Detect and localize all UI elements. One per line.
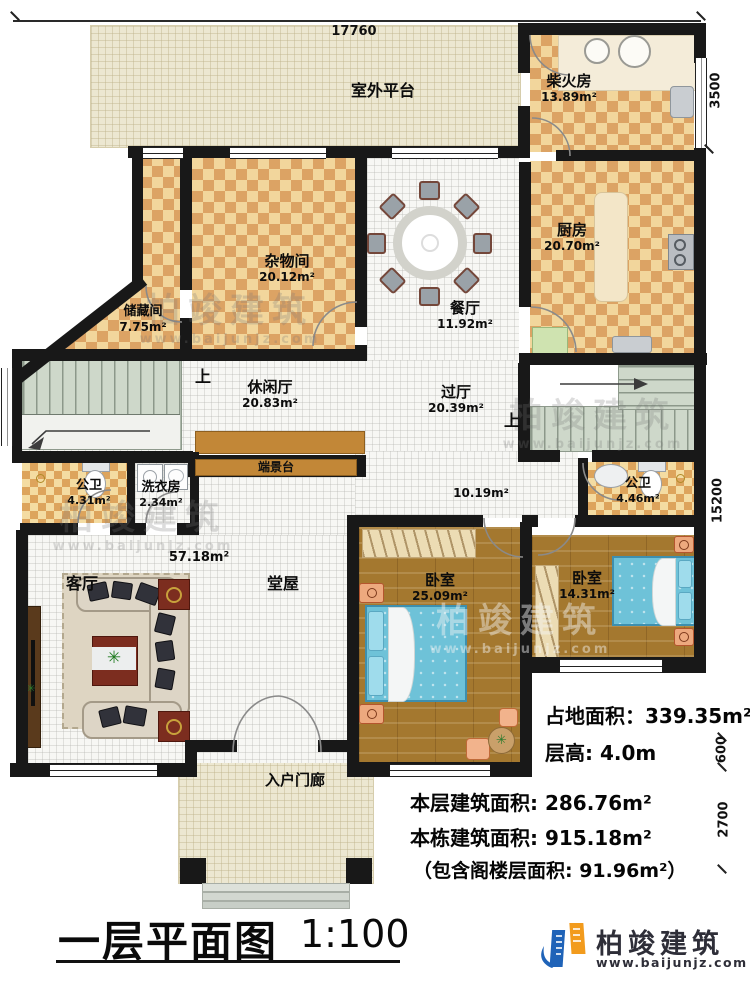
info-floor-height: 层高: 4.0m	[545, 737, 656, 766]
wall	[180, 318, 192, 352]
room-label-dining: 餐厅	[450, 300, 480, 317]
room-area-leisure: 20.83m²	[242, 397, 298, 410]
room-area-main-hall: 57.18m²	[169, 551, 229, 565]
nightstand	[359, 583, 384, 603]
wall	[355, 345, 367, 361]
room-label-living: 客厅	[66, 575, 98, 593]
room-area-bedroom-left: 25.09m²	[412, 590, 468, 603]
sofa-cushion	[111, 581, 133, 601]
bath-right-sink	[594, 464, 628, 488]
wall	[12, 349, 360, 361]
stairs-up-label-right: 上	[504, 412, 520, 430]
porch-pillar	[180, 858, 206, 884]
page-title-scale: 1:100	[300, 912, 410, 956]
wall	[578, 458, 588, 518]
wall	[355, 155, 367, 327]
window	[1, 368, 13, 446]
wall	[520, 522, 532, 777]
porch-step	[202, 892, 350, 901]
floor-plan-canvas: ✳ ✳ ✳	[0, 0, 750, 987]
side-table	[158, 711, 190, 742]
room-area-dining: 11.92m²	[437, 318, 493, 331]
wardrobe	[362, 529, 476, 558]
dim-tick	[717, 864, 727, 874]
room-label-sundry: 杂物间	[264, 253, 309, 270]
wall	[518, 363, 530, 452]
room-label-bath-left: 公卫	[76, 479, 102, 493]
pillow	[368, 611, 384, 651]
wall	[20, 451, 193, 463]
brand-url: www.baijunjz.com	[596, 955, 748, 970]
stairs-right	[530, 406, 696, 452]
kitchen-cabinet	[532, 327, 568, 355]
window	[230, 147, 326, 159]
wall	[519, 353, 707, 365]
stairs-up-label-left: 上	[195, 368, 211, 386]
dim-line-top	[13, 20, 701, 22]
wall	[193, 740, 237, 752]
pillow	[678, 592, 692, 620]
firewood-sink	[670, 86, 694, 118]
stairs-right-upper	[618, 365, 696, 410]
sofa-cushion	[123, 705, 148, 727]
pillow	[368, 656, 384, 696]
title-underline	[56, 960, 400, 963]
bath-light	[36, 474, 45, 483]
stool	[499, 708, 518, 727]
wall	[694, 148, 706, 673]
room-area-storage: 7.75m²	[119, 321, 166, 334]
room-area-kitchen: 20.70m²	[544, 240, 600, 253]
room-area-bath-left: 4.31m²	[67, 495, 110, 507]
room-label-storage: 储藏间	[123, 305, 162, 319]
pillow	[678, 560, 692, 588]
wall	[556, 150, 706, 161]
nightstand	[359, 704, 384, 724]
kitchen-sink	[612, 336, 652, 353]
room-area-sundry: 20.12m²	[259, 271, 315, 284]
wood-stove-burner	[584, 38, 610, 64]
room-area-bedroom-right: 14.31m²	[559, 588, 615, 601]
wall	[180, 155, 192, 290]
plant-table: ✳	[488, 727, 515, 754]
room-label-bath-right: 公卫	[625, 477, 651, 491]
dining-chair	[473, 233, 492, 254]
room-label-bedroom-left: 卧室	[425, 572, 455, 589]
sofa-cushion	[155, 640, 176, 662]
window	[560, 659, 662, 673]
room-area-firewood: 13.89m²	[541, 91, 597, 104]
window	[695, 58, 707, 148]
dim-right-2700: 2700	[717, 798, 732, 842]
logo-building-orange	[569, 923, 585, 954]
window	[390, 764, 490, 777]
window	[392, 147, 498, 159]
wall	[347, 515, 359, 777]
dim-right-mid: 15200	[711, 473, 726, 529]
room-label-kitchen: 厨房	[557, 222, 587, 239]
wall	[16, 530, 28, 770]
wall	[318, 740, 347, 752]
room-area-hallway: 20.39m²	[428, 402, 484, 415]
room-label-porch: 入户门廊	[265, 772, 325, 789]
coffee-table-plant: ✳	[104, 648, 124, 668]
wall	[519, 162, 531, 307]
wall	[694, 23, 706, 63]
wall	[518, 450, 560, 462]
room-area-corridor: 10.19m²	[453, 487, 509, 500]
nightstand	[674, 536, 694, 553]
room-label-hallway: 过厅	[441, 384, 471, 401]
sofa-cushion	[154, 668, 175, 691]
bath-light	[676, 474, 685, 483]
dining-chair	[419, 287, 440, 306]
dining-chair	[419, 181, 440, 200]
dining-chair	[367, 233, 386, 254]
room-label-firewood: 柴火房	[546, 73, 591, 90]
dim-top-label: 17760	[314, 24, 394, 39]
room-area-laundry: 2.34m²	[139, 497, 182, 509]
dim-right-top: 3500	[709, 69, 724, 113]
kitchen-stove-burner	[674, 239, 686, 251]
floor-outdoor-platform	[90, 25, 521, 148]
floor-hall-mid	[197, 477, 355, 535]
info-floor-area: 本层建筑面积: 286.76m²	[410, 787, 652, 816]
nightstand	[674, 628, 694, 646]
stairs-left-landing	[22, 414, 180, 449]
info-total-area: 本栋建筑面积: 915.18m²	[410, 822, 652, 851]
wall	[524, 23, 706, 35]
bed-sheet	[652, 558, 676, 626]
room-label-leisure: 休闲厅	[247, 379, 292, 396]
wood-stove-burner	[618, 35, 651, 68]
wall	[127, 452, 135, 532]
wall	[132, 158, 143, 288]
info-land-area: 占地面积：339.35m²	[545, 700, 750, 729]
logo-icon	[536, 918, 590, 974]
kitchen-stove-burner	[674, 254, 686, 266]
console-table-label: 端景台	[195, 459, 357, 476]
info-attic-area: （包含阁楼层面积: 91.96m²）	[413, 856, 686, 883]
side-table	[158, 579, 190, 610]
wall	[518, 23, 530, 73]
porch-pillar	[346, 858, 372, 884]
bed-sheet	[388, 607, 415, 702]
wall	[347, 515, 483, 527]
room-label-outdoor-platform: 室外平台	[351, 82, 415, 100]
wall	[575, 515, 706, 527]
wall	[12, 440, 22, 463]
closet	[535, 565, 559, 667]
window	[50, 764, 157, 777]
porch-step	[202, 883, 350, 892]
dining-table-center	[421, 234, 439, 252]
room-label-bedroom-right: 卧室	[572, 570, 602, 587]
wall	[20, 523, 78, 535]
room-label-main-hall: 堂屋	[267, 575, 299, 593]
stool	[466, 738, 490, 760]
room-label-laundry: 洗衣房	[141, 481, 180, 495]
room-area-bath-right: 4.46m²	[616, 493, 659, 505]
wall	[592, 450, 706, 462]
floor-bath-left	[22, 463, 127, 523]
window	[143, 147, 183, 159]
tv-screen	[31, 640, 35, 706]
console-table-top	[195, 431, 365, 454]
